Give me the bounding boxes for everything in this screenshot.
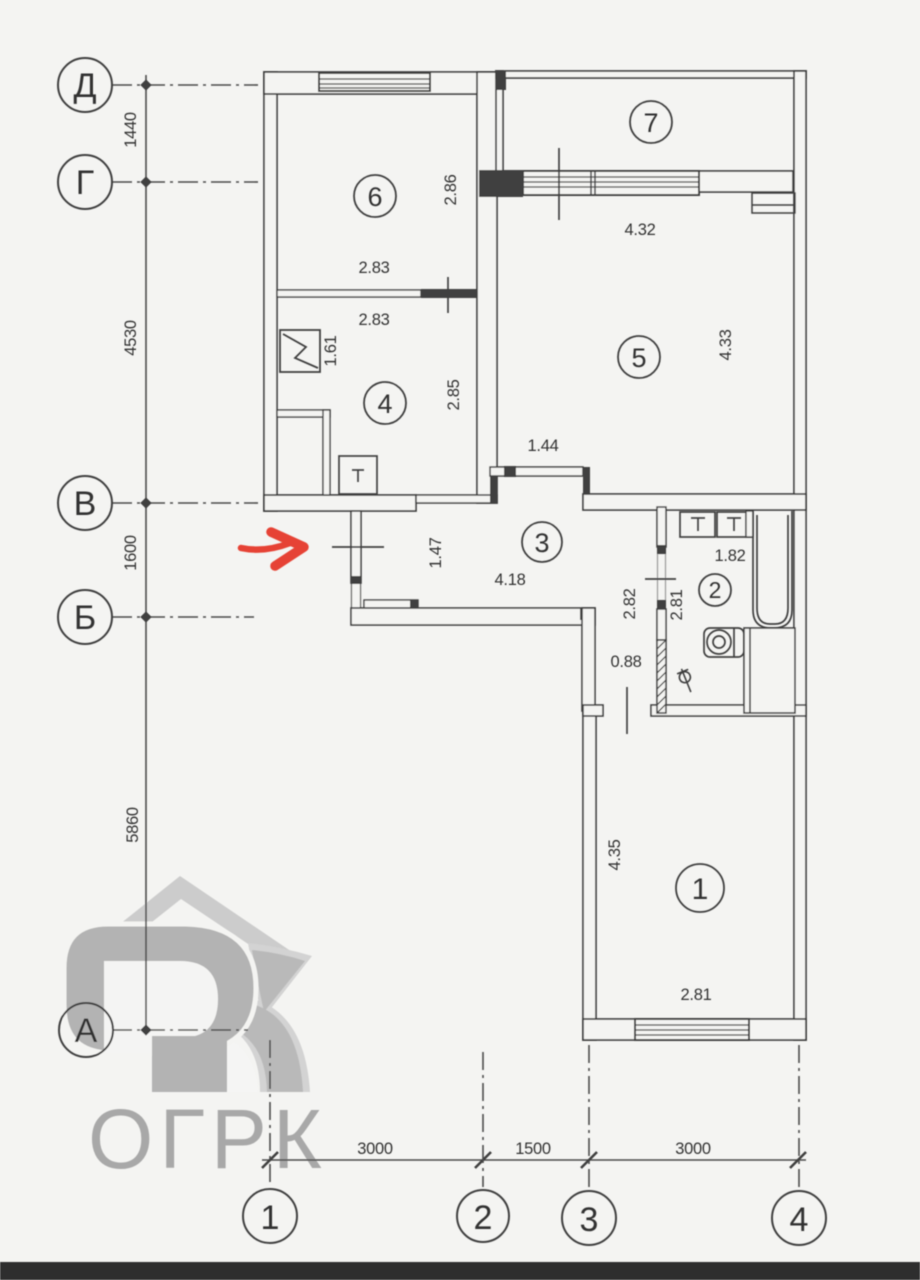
svg-text:1.61: 1.61 <box>322 335 340 366</box>
svg-text:1.47: 1.47 <box>427 537 445 568</box>
svg-text:1.82: 1.82 <box>715 547 746 565</box>
svg-text:2.81: 2.81 <box>668 589 686 620</box>
svg-text:1600: 1600 <box>122 535 140 571</box>
svg-text:2.81: 2.81 <box>681 986 712 1004</box>
svg-text:3000: 3000 <box>357 1140 393 1158</box>
svg-text:5860: 5860 <box>124 807 142 843</box>
svg-text:3: 3 <box>534 528 549 558</box>
svg-text:4.18: 4.18 <box>495 571 526 589</box>
svg-text:1.44: 1.44 <box>528 437 559 455</box>
svg-text:2.83: 2.83 <box>359 259 390 277</box>
svg-text:2.83: 2.83 <box>359 311 390 329</box>
svg-text:4.35: 4.35 <box>606 839 624 870</box>
svg-text:1500: 1500 <box>515 1140 551 1158</box>
svg-text:Б: Б <box>74 599 96 637</box>
svg-text:3000: 3000 <box>675 1140 711 1158</box>
svg-text:1: 1 <box>261 1199 280 1237</box>
svg-text:Д: Д <box>73 67 96 105</box>
svg-text:4: 4 <box>377 389 392 419</box>
svg-text:Г: Г <box>76 164 94 202</box>
svg-text:2.82: 2.82 <box>621 588 639 619</box>
svg-text:4.33: 4.33 <box>717 329 735 360</box>
svg-text:2.86: 2.86 <box>442 174 460 205</box>
svg-text:А: А <box>75 1012 98 1050</box>
svg-text:2: 2 <box>474 1199 493 1237</box>
svg-text:ОГРК: ОГРК <box>88 1092 328 1186</box>
svg-text:1: 1 <box>692 873 709 906</box>
svg-text:4: 4 <box>790 1201 809 1239</box>
svg-text:7: 7 <box>643 108 658 138</box>
svg-text:1440: 1440 <box>122 112 140 148</box>
svg-text:2.85: 2.85 <box>445 379 463 410</box>
svg-text:5: 5 <box>631 343 646 373</box>
svg-text:0.88: 0.88 <box>611 653 642 671</box>
svg-text:6: 6 <box>367 182 382 212</box>
svg-text:4.32: 4.32 <box>625 221 656 239</box>
svg-text:В: В <box>74 485 97 523</box>
svg-text:3: 3 <box>580 1201 599 1239</box>
svg-text:2: 2 <box>709 577 722 603</box>
svg-text:4530: 4530 <box>122 320 140 356</box>
